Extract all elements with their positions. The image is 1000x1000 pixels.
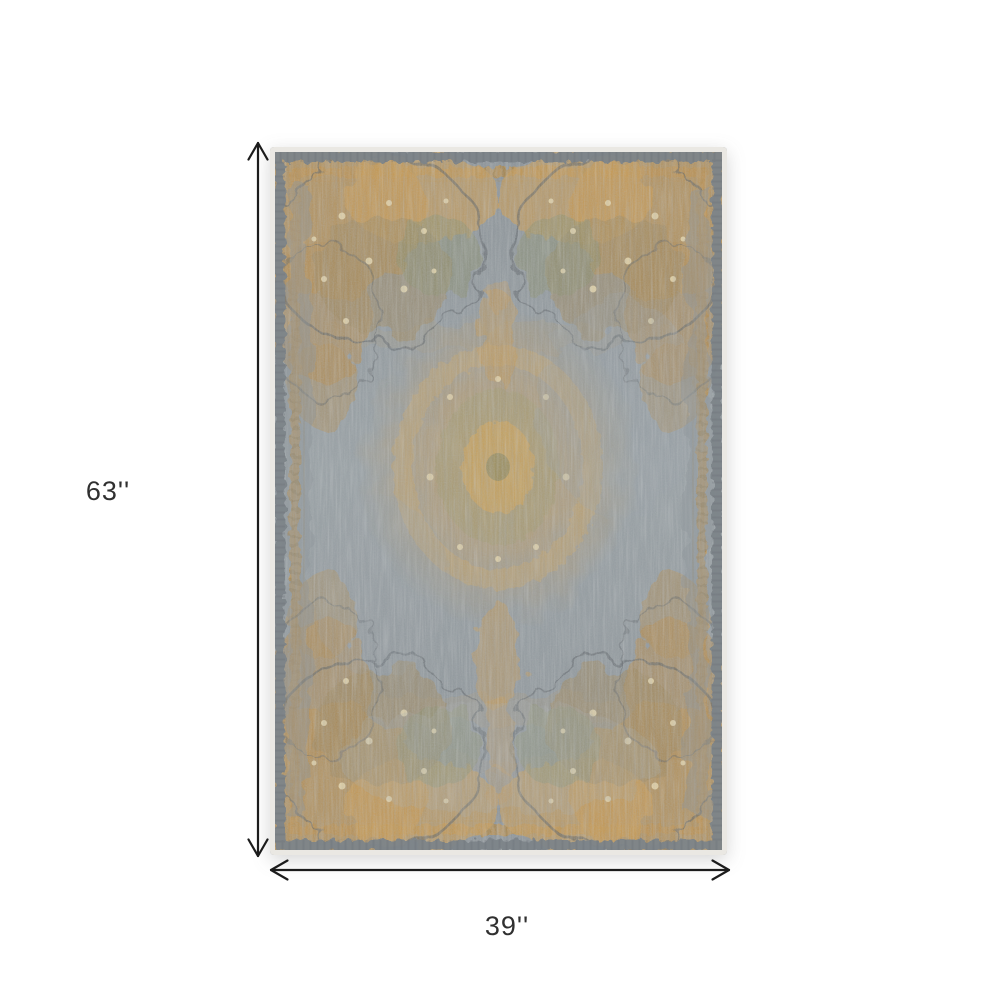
width-dimension-arrow	[271, 861, 729, 880]
rug-image	[270, 147, 727, 855]
rug-distress-overlay	[270, 147, 727, 855]
product-dimension-diagram: 63'' 39''	[0, 0, 1000, 1000]
width-label: 39''	[472, 911, 542, 942]
rug-artwork	[270, 147, 727, 855]
height-dimension-arrow	[249, 143, 268, 856]
height-label: 63''	[73, 476, 143, 507]
